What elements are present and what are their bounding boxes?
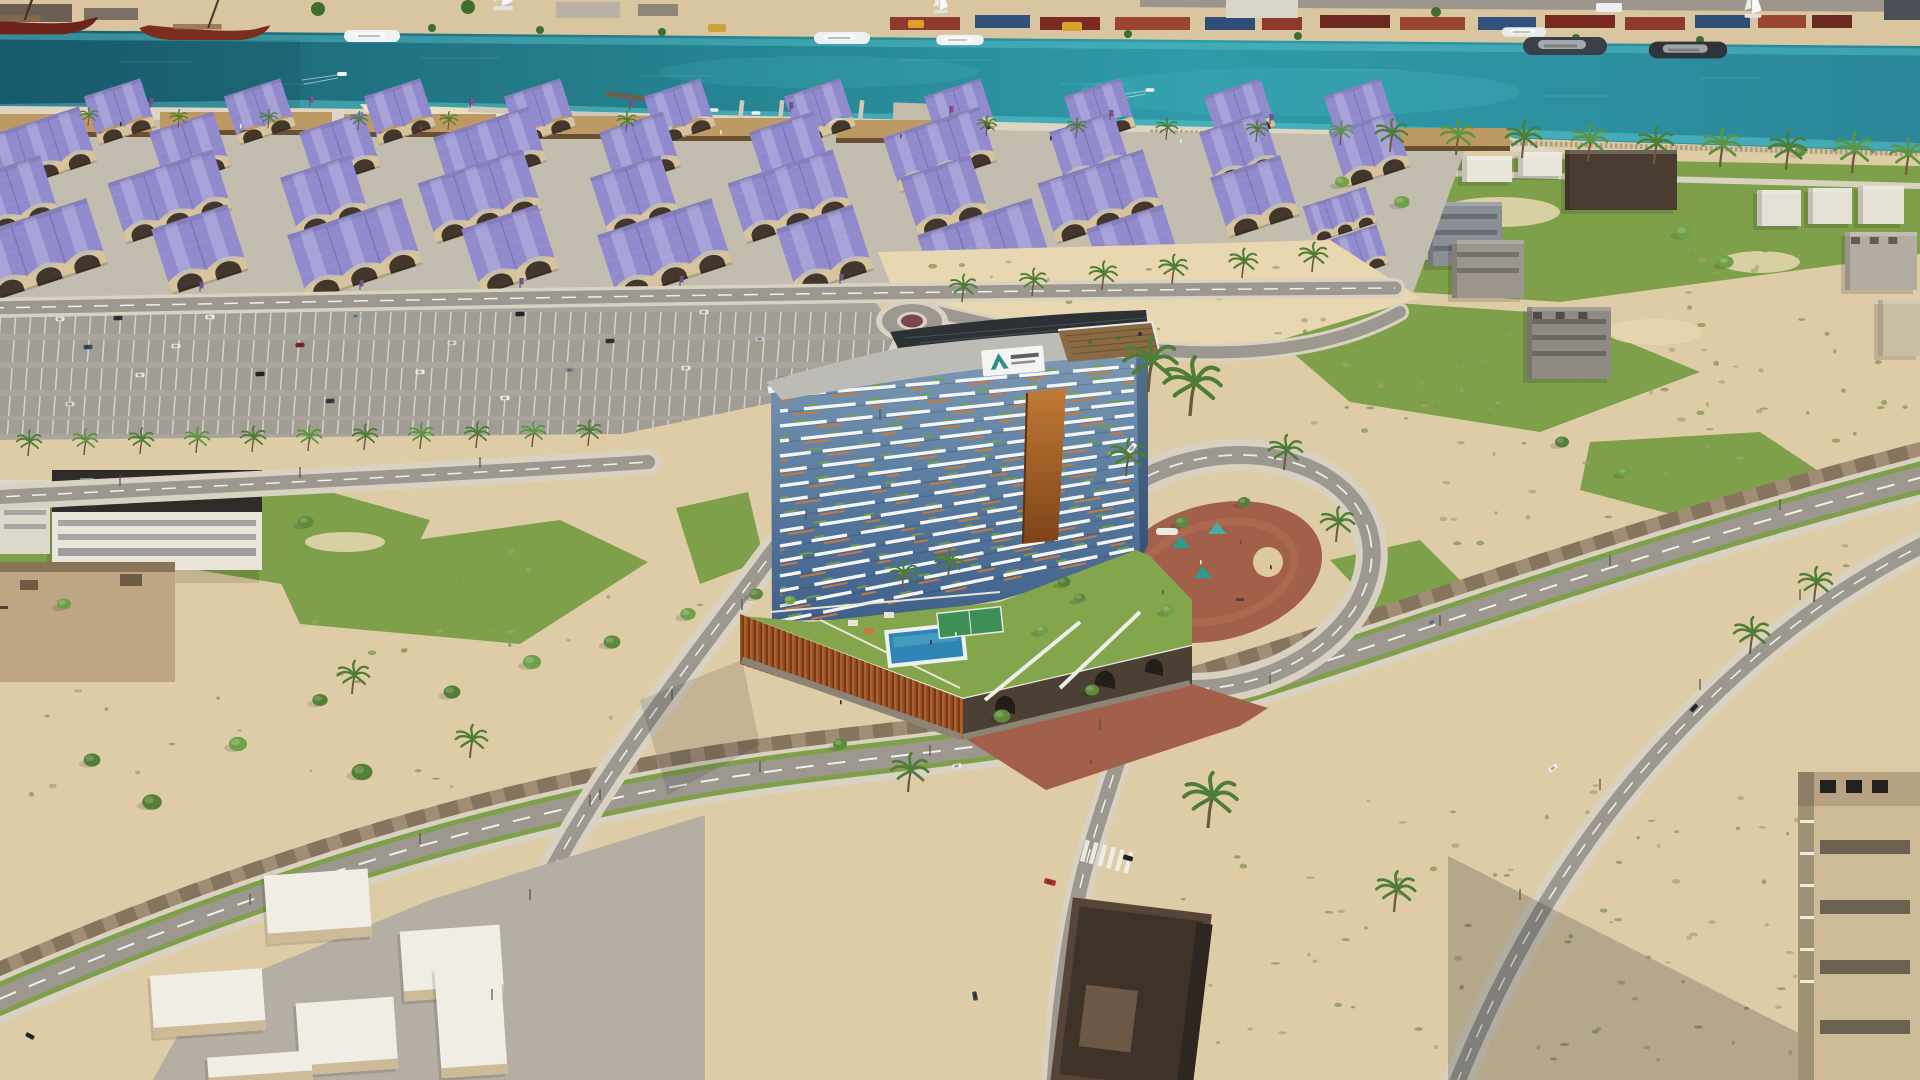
scrub	[1460, 387, 1464, 392]
pedestrian	[840, 700, 842, 704]
scrub	[1398, 821, 1407, 823]
scrub	[74, 689, 82, 692]
scrub	[1438, 569, 1444, 572]
parked-car	[447, 341, 456, 346]
scrub	[44, 715, 49, 718]
shipping-container	[1262, 17, 1302, 30]
yacht-boat	[936, 35, 984, 45]
parked-car	[255, 372, 264, 377]
scrub	[1648, 820, 1655, 822]
parked-car	[681, 366, 690, 371]
pedestrian	[1162, 590, 1164, 594]
purple-banner	[631, 100, 634, 107]
scrub	[415, 769, 422, 772]
scrub	[1853, 432, 1857, 436]
scrub	[1689, 933, 1698, 937]
scrub	[1708, 920, 1716, 924]
tree	[749, 589, 763, 600]
scrub	[401, 648, 408, 651]
scrub	[1579, 380, 1583, 383]
scrub	[1718, 380, 1725, 383]
tree	[1676, 225, 1693, 238]
scrub	[1657, 844, 1661, 848]
scrub	[1582, 461, 1590, 465]
tree	[1058, 577, 1071, 587]
scrub	[1759, 368, 1764, 372]
shipping-container	[1625, 17, 1685, 30]
truck	[1596, 3, 1622, 12]
scrub	[1686, 936, 1692, 940]
skiff-boat	[1146, 88, 1155, 92]
mid-rise-building	[1458, 156, 1512, 186]
scrub	[1697, 323, 1706, 327]
scrub	[49, 784, 57, 789]
quay-tree	[1431, 7, 1441, 17]
scrub	[312, 620, 317, 624]
parked-car	[500, 396, 509, 401]
scrub	[1636, 836, 1639, 840]
truck	[908, 20, 924, 28]
scrub	[1306, 876, 1315, 879]
scrub	[1504, 874, 1510, 877]
scrub	[959, 263, 965, 267]
quay-building	[84, 8, 138, 20]
scrub	[1247, 1028, 1253, 1031]
scrub	[1457, 360, 1463, 364]
quay-tree	[536, 26, 544, 34]
tree	[1036, 625, 1049, 635]
tree	[784, 596, 795, 605]
scrub	[1344, 406, 1349, 409]
parked-car	[55, 317, 64, 322]
scrub	[1341, 938, 1350, 941]
scrub	[1311, 421, 1317, 424]
shipping-container	[1758, 15, 1806, 28]
scrub	[432, 778, 440, 780]
parked-car	[699, 310, 708, 315]
scrub	[1589, 790, 1597, 794]
scrub	[1420, 383, 1423, 385]
quay-building	[1226, 0, 1298, 18]
aerial-render	[0, 0, 1920, 1080]
scrub	[1660, 388, 1669, 392]
scrub	[1234, 855, 1241, 859]
pedestrian	[240, 124, 242, 128]
pedestrian	[1090, 760, 1092, 764]
shipping-container	[890, 17, 960, 30]
scrub	[104, 707, 108, 711]
purple-banner	[361, 280, 364, 287]
shipping-container	[1115, 17, 1190, 30]
mid-rise-building	[1841, 232, 1917, 294]
scrub	[1902, 405, 1908, 409]
scrub	[1690, 252, 1696, 256]
tree	[1618, 467, 1631, 477]
roundabout-planting	[901, 315, 923, 328]
villa	[261, 868, 373, 946]
parked-car	[113, 316, 122, 321]
scrub	[1677, 417, 1686, 421]
scrub	[1824, 332, 1829, 336]
mid-rise-building	[1874, 300, 1920, 360]
scrub	[1367, 800, 1371, 802]
scrub	[1687, 305, 1692, 310]
mid-rise-building	[1448, 240, 1524, 302]
scrub	[1404, 417, 1408, 419]
scrub	[1649, 390, 1653, 394]
scrub	[487, 624, 493, 626]
tree	[1085, 685, 1099, 696]
scrub	[1146, 268, 1152, 271]
scrub	[1181, 898, 1186, 901]
shipping-container	[1205, 17, 1255, 30]
scrub	[526, 568, 532, 572]
quay-building	[1884, 0, 1920, 20]
scrub	[1453, 541, 1461, 545]
scrub	[1706, 402, 1709, 407]
scrub	[1826, 241, 1832, 243]
scrub	[1334, 1003, 1342, 1007]
scrub	[1756, 409, 1763, 413]
yacht-boat	[1502, 27, 1547, 37]
scrub	[1755, 265, 1759, 270]
mid-rise-building	[1804, 188, 1852, 228]
yacht-boat	[344, 30, 400, 42]
scrub	[1706, 428, 1713, 430]
scrub	[1877, 406, 1885, 409]
quay-building	[556, 2, 620, 18]
scrub	[1457, 441, 1465, 444]
scrub	[1528, 490, 1536, 494]
truck	[708, 24, 726, 32]
scrub	[458, 578, 461, 583]
quay-building	[638, 4, 678, 16]
parked-car	[295, 343, 304, 348]
pedestrian	[1200, 560, 1202, 564]
scrub	[1508, 869, 1514, 872]
scrub	[1881, 400, 1887, 405]
scrub	[1451, 844, 1460, 848]
scrub	[1473, 374, 1478, 376]
scrub	[1440, 517, 1447, 522]
scrub	[990, 275, 993, 278]
scrub	[1614, 918, 1622, 921]
scrub	[1272, 266, 1280, 269]
scrub	[1450, 811, 1456, 814]
scrub	[1833, 349, 1836, 354]
scrub	[1271, 962, 1280, 964]
scrub	[1593, 784, 1599, 787]
pedestrian	[900, 134, 902, 138]
scrub	[1685, 291, 1692, 294]
scrub	[1442, 481, 1450, 484]
scene-svg	[0, 0, 1920, 1080]
tree	[680, 608, 695, 620]
villa	[431, 964, 508, 1080]
quay-tree	[461, 0, 475, 14]
sail-boat	[1744, 0, 1761, 18]
tree	[604, 635, 621, 648]
scrub	[1451, 518, 1457, 521]
quay-tree	[1124, 30, 1132, 38]
scrub	[1736, 827, 1740, 830]
purple-banner	[311, 96, 314, 103]
scrub	[450, 785, 454, 787]
scrub	[1732, 366, 1738, 368]
tree	[298, 516, 313, 528]
pedestrian	[1050, 136, 1052, 140]
scrub	[1669, 348, 1675, 353]
scrub	[1005, 261, 1011, 264]
yacht-boat	[814, 32, 870, 44]
parked-car	[565, 368, 574, 373]
scrub	[1672, 879, 1681, 884]
scrub	[1522, 442, 1527, 445]
scrub	[1701, 349, 1708, 352]
scrub	[1350, 344, 1358, 347]
scrub	[1758, 826, 1766, 829]
scrub	[1762, 879, 1767, 884]
scrub	[1698, 258, 1706, 263]
tree	[57, 599, 71, 610]
scrub	[1713, 271, 1717, 273]
scrub	[1338, 910, 1345, 913]
scrub	[1351, 1006, 1356, 1009]
mid-rise-building	[1854, 186, 1904, 228]
tree	[1162, 605, 1175, 615]
scrub	[1157, 328, 1160, 331]
scrub	[1421, 404, 1428, 407]
scrub	[1364, 926, 1368, 929]
scrub	[1841, 388, 1846, 392]
scrub	[1609, 921, 1613, 924]
scrub	[216, 697, 220, 700]
tower-sign	[981, 345, 1045, 376]
scrub	[1415, 1027, 1423, 1031]
purple-banner	[1111, 110, 1114, 117]
scrub	[1494, 511, 1498, 514]
tree	[1175, 517, 1189, 528]
scrub	[1665, 961, 1671, 963]
scrub	[1434, 404, 1438, 408]
tree	[523, 655, 541, 669]
yacht-boat	[1649, 42, 1727, 59]
scrub	[1478, 366, 1487, 368]
pedestrian	[560, 128, 562, 132]
scrub	[1798, 318, 1805, 321]
purple-banner	[521, 278, 524, 285]
parked-car	[605, 339, 614, 344]
scrub	[1674, 830, 1679, 833]
scrub	[1239, 864, 1247, 869]
parked-car	[325, 399, 334, 404]
scrub	[1496, 401, 1501, 404]
scrub	[1842, 564, 1849, 567]
tree	[1394, 196, 1409, 208]
tree	[833, 739, 847, 750]
pedestrian	[720, 130, 722, 134]
parked-car	[205, 315, 214, 320]
scrub	[1699, 450, 1707, 452]
parked-car	[135, 373, 144, 378]
pedestrian	[420, 126, 422, 130]
pedestrian	[930, 640, 932, 644]
scrub	[1706, 444, 1709, 448]
scrub	[1513, 358, 1517, 361]
parked-car	[351, 314, 360, 319]
tree	[1555, 437, 1569, 448]
dark-brown-building	[1050, 897, 1213, 1080]
scrub	[368, 650, 377, 655]
scrub	[436, 629, 442, 632]
scrub	[606, 595, 610, 599]
scrub	[1737, 796, 1743, 800]
scrub	[1378, 383, 1384, 388]
mid-rise-building	[1561, 150, 1677, 214]
scrub	[1434, 1045, 1438, 1049]
truck	[1062, 22, 1082, 31]
scrub	[508, 643, 512, 647]
pedestrian	[1270, 565, 1272, 569]
quay-tree	[658, 28, 666, 36]
tree	[1335, 177, 1349, 188]
scrub	[1789, 469, 1795, 471]
purple-banner	[791, 102, 794, 109]
scrub	[1366, 406, 1374, 409]
scrub	[1325, 911, 1334, 914]
scrub	[1786, 951, 1794, 954]
scrub	[566, 639, 571, 642]
scrub	[1492, 452, 1495, 456]
pedestrian	[1240, 540, 1242, 544]
shipping-container	[975, 15, 1030, 28]
pedestrian	[120, 122, 122, 126]
scrub	[1303, 329, 1307, 334]
parked-car	[83, 345, 92, 350]
scrub	[169, 743, 175, 746]
scrub	[1493, 873, 1497, 877]
purple-banner	[841, 274, 844, 281]
purple-banner	[681, 276, 684, 283]
tree	[312, 694, 327, 706]
tree	[1238, 497, 1251, 507]
scrub	[1216, 1041, 1220, 1044]
scrub	[1361, 428, 1368, 433]
scrub	[1320, 317, 1326, 321]
scrub	[1616, 861, 1622, 864]
purple-banner	[1271, 114, 1274, 121]
parked-car	[755, 337, 764, 342]
parked-car	[415, 370, 424, 375]
scrub	[1775, 1005, 1782, 1008]
shipping-container	[1812, 15, 1852, 28]
scrub	[1832, 439, 1841, 443]
skiff-boat	[337, 72, 347, 76]
villa	[147, 968, 266, 1041]
scrub	[1777, 987, 1786, 990]
tree	[444, 685, 461, 698]
shipping-container	[1320, 15, 1390, 28]
scrub	[1301, 318, 1308, 323]
shipping-container	[1695, 15, 1750, 28]
scrub	[697, 604, 703, 606]
scrub	[1307, 952, 1310, 956]
scrub	[1842, 544, 1849, 547]
scrub	[1476, 541, 1484, 546]
scrub	[1274, 332, 1282, 335]
scrub	[1764, 923, 1769, 926]
pedestrian	[955, 632, 957, 636]
scrub	[1525, 515, 1530, 520]
scrub	[1663, 473, 1667, 475]
parked-car	[515, 312, 524, 317]
purple-banner	[151, 98, 154, 105]
pedestrian	[1180, 139, 1182, 143]
scrub	[1278, 1031, 1287, 1034]
quay-tree	[428, 24, 436, 32]
purple-banner	[201, 282, 204, 289]
scrub	[135, 770, 141, 774]
scrub	[609, 716, 613, 720]
scrub	[1806, 411, 1809, 415]
scrub	[1545, 815, 1549, 820]
tree	[1718, 256, 1733, 268]
scrub	[1786, 832, 1789, 836]
scrub	[1713, 361, 1719, 366]
scrub	[237, 729, 242, 731]
scrub	[1761, 249, 1769, 252]
parked-car	[171, 344, 180, 349]
scrub	[1793, 975, 1798, 978]
scrub	[1486, 412, 1493, 417]
tree	[142, 794, 162, 809]
scrub	[509, 549, 515, 553]
shipping-container	[1545, 15, 1615, 28]
scrub	[1549, 379, 1555, 381]
shade-shelter	[1156, 528, 1178, 535]
purple-banner	[471, 98, 474, 105]
scrub	[1696, 411, 1704, 416]
scrub	[1341, 363, 1349, 367]
scrub	[309, 769, 312, 772]
tree	[229, 737, 247, 751]
shipping-container	[1400, 17, 1465, 30]
scrub	[1760, 408, 1769, 410]
tree	[1074, 594, 1085, 603]
scrub	[1600, 909, 1608, 913]
quay-tree	[311, 2, 325, 16]
quay-tree	[1294, 32, 1302, 40]
scrub	[29, 792, 34, 797]
scrub	[1875, 360, 1882, 364]
scrub	[1208, 984, 1212, 987]
mid-rise-building	[1753, 190, 1801, 230]
tree	[84, 753, 101, 766]
scrub	[507, 630, 516, 633]
scrub	[1604, 516, 1612, 519]
tree	[352, 764, 373, 781]
scrub	[1312, 959, 1317, 963]
beige-apartment-building	[1798, 772, 1920, 1080]
scrub	[1797, 254, 1801, 256]
scrub	[1527, 402, 1534, 404]
tree	[994, 709, 1011, 722]
scrub	[1430, 867, 1437, 872]
scrub	[1736, 456, 1744, 459]
parked-car	[65, 402, 74, 407]
purple-banner	[951, 106, 954, 113]
scrub	[1502, 329, 1509, 332]
